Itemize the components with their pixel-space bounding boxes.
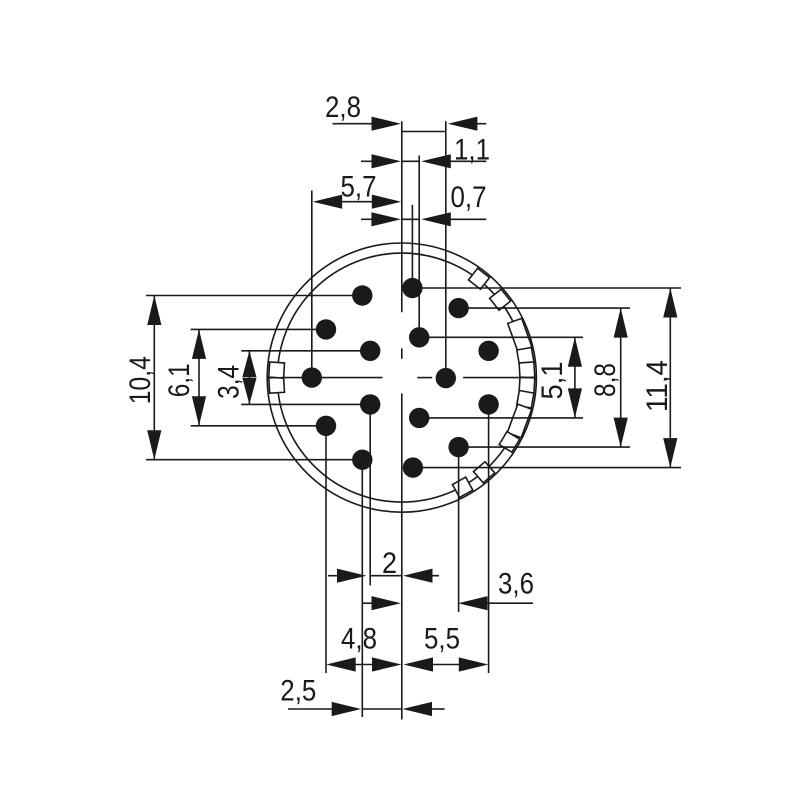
svg-text:10,4: 10,4 <box>124 356 157 404</box>
svg-text:11,4: 11,4 <box>641 360 674 412</box>
svg-text:2: 2 <box>382 547 397 580</box>
svg-text:5,5: 5,5 <box>424 623 460 656</box>
svg-text:5,1: 5,1 <box>536 362 569 400</box>
svg-text:5,7: 5,7 <box>341 170 377 203</box>
svg-text:3,6: 3,6 <box>498 568 534 601</box>
svg-text:1,1: 1,1 <box>454 134 490 167</box>
svg-text:8,8: 8,8 <box>589 363 622 397</box>
svg-text:6,1: 6,1 <box>163 363 196 397</box>
svg-text:2,5: 2,5 <box>280 675 316 708</box>
svg-text:3,4: 3,4 <box>213 365 246 399</box>
svg-text:4,8: 4,8 <box>341 623 377 656</box>
svg-text:2,8: 2,8 <box>325 91 361 124</box>
svg-text:0,7: 0,7 <box>451 181 487 214</box>
